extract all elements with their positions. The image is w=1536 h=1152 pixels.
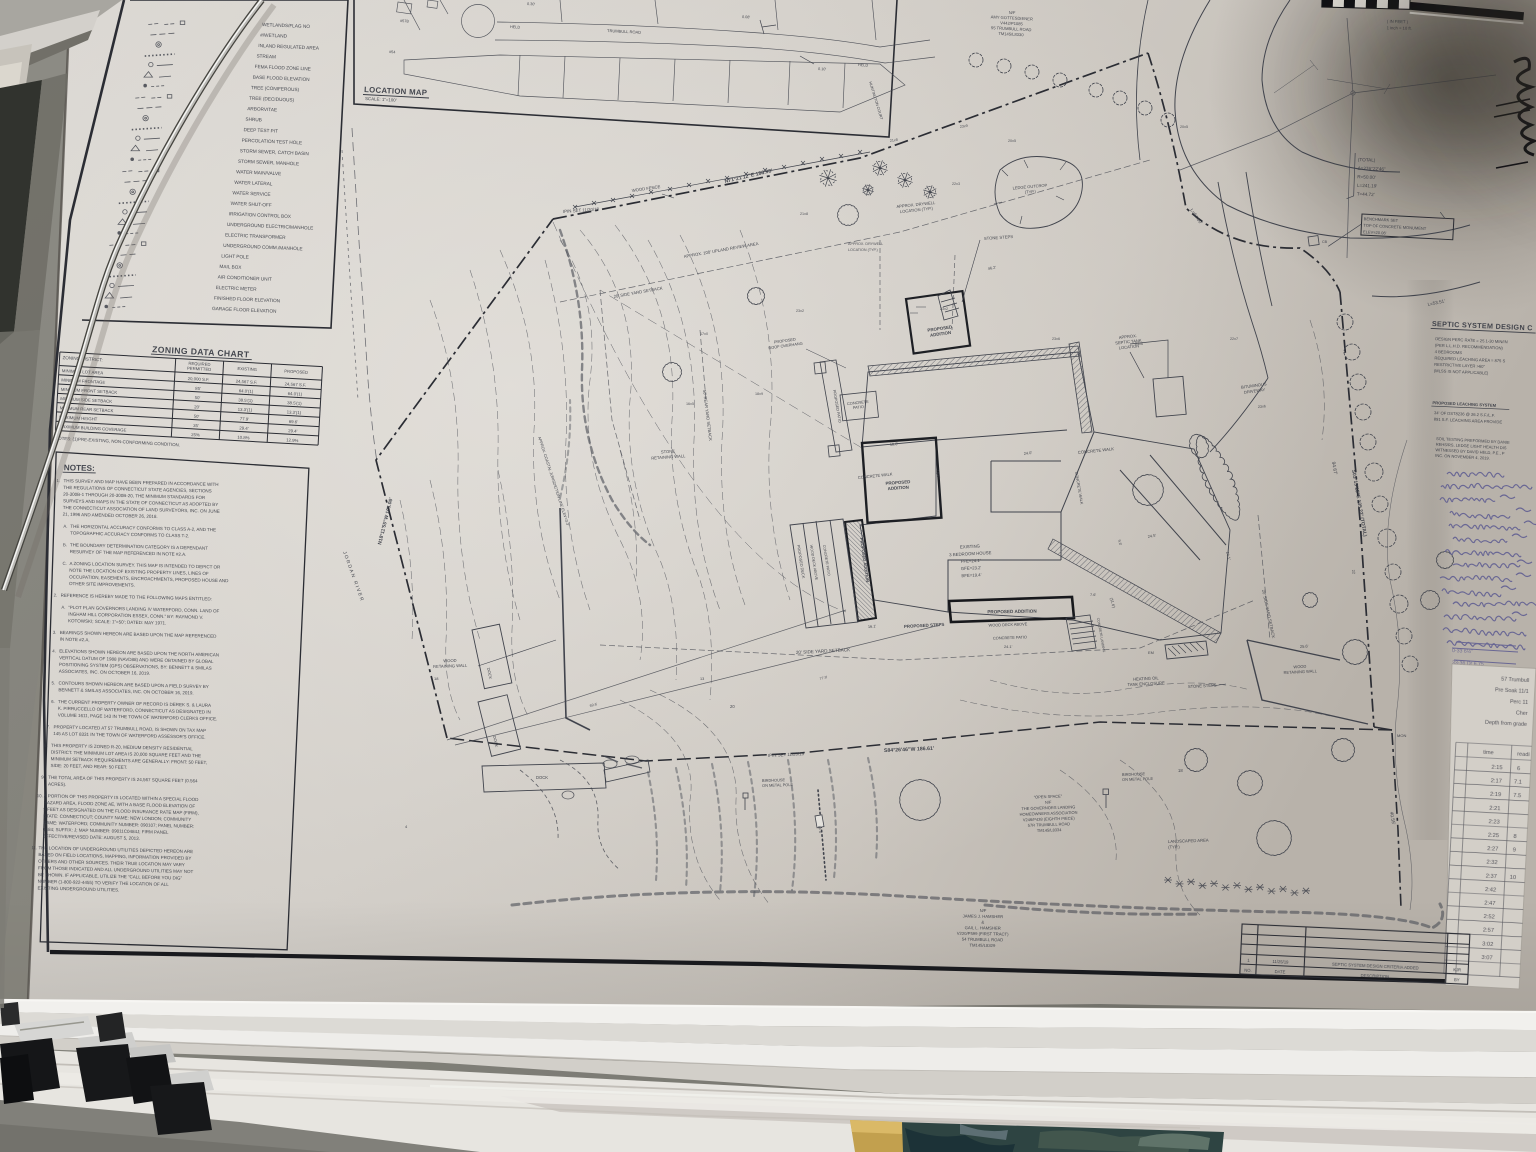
svg-text:3:02: 3:02: [1482, 941, 1494, 948]
svg-text:22x3: 22x3: [952, 182, 960, 186]
svg-text:2:32: 2:32: [1486, 860, 1498, 867]
svg-text:SHRUB: SHRUB: [245, 117, 262, 123]
svg-text:69.6': 69.6': [289, 419, 299, 425]
svg-text:29.4': 29.4': [288, 428, 298, 434]
svg-text:11.: 11.: [31, 845, 37, 850]
svg-text:8.: 8.: [44, 743, 48, 748]
svg-text:MAIL BOX: MAIL BOX: [219, 264, 242, 270]
svg-text:18x9: 18x9: [755, 392, 763, 396]
svg-text:B.: B.: [63, 542, 67, 547]
svg-text:7.: 7.: [46, 724, 50, 729]
svg-text:10: 10: [1510, 875, 1517, 881]
svg-text:20x5: 20x5: [1180, 125, 1188, 129]
svg-text:13.3'(1): 13.3'(1): [238, 407, 253, 413]
svg-text:2:52: 2:52: [1483, 914, 1495, 921]
svg-text:NO.: NO.: [1244, 968, 1252, 973]
svg-text:25.6': 25.6': [1300, 643, 1309, 649]
svg-text:85': 85': [195, 386, 201, 391]
svg-text:10.0': 10.0': [890, 441, 899, 447]
svg-text:2:37: 2:37: [1485, 873, 1497, 880]
svg-text:64.0'(1): 64.0'(1): [288, 391, 303, 397]
svg-text:12.9%: 12.9%: [286, 437, 299, 443]
svg-text:time: time: [1483, 750, 1494, 757]
svg-text:HELD: HELD: [510, 25, 521, 30]
svg-text:2:21: 2:21: [1489, 805, 1501, 812]
svg-text:9.: 9.: [41, 775, 45, 780]
svg-text:23x2: 23x2: [796, 309, 804, 313]
svg-text:PROPOSEDADDITION: PROPOSEDADDITION: [885, 479, 911, 491]
svg-text:64.0'(1): 64.0'(1): [239, 388, 254, 394]
svg-text:0-33 6½”: 0-33 6½”: [1452, 647, 1473, 655]
svg-text:22x7: 22x7: [1230, 337, 1238, 341]
svg-text:DATE: DATE: [1274, 969, 1285, 974]
svg-text:7.1: 7.1: [1514, 780, 1522, 786]
svg-text:2:42: 2:42: [1485, 887, 1497, 894]
svg-text:STREAM: STREAM: [256, 54, 276, 60]
svg-text:23x6: 23x6: [1258, 404, 1266, 409]
svg-text:MON: MON: [1397, 733, 1406, 738]
svg-text:3:07: 3:07: [1481, 955, 1493, 962]
svg-text:50': 50': [194, 414, 200, 419]
svg-text:50': 50': [195, 395, 201, 400]
svg-text:29.4': 29.4': [239, 425, 249, 431]
svg-text:38.5'(1): 38.5'(1): [287, 400, 302, 406]
svg-text:21x8: 21x8: [800, 212, 808, 216]
svg-text:C.: C.: [62, 561, 66, 566]
svg-text:2:17: 2:17: [1490, 778, 1502, 785]
svg-text:2:47: 2:47: [1484, 901, 1496, 908]
svg-text:0.08': 0.08': [742, 15, 751, 19]
svg-text:BY: BY: [1454, 977, 1460, 982]
svg-text:35': 35': [193, 423, 199, 428]
svg-text:24.1': 24.1': [1004, 644, 1013, 649]
svg-text:22: 22: [1351, 569, 1356, 574]
svg-text:17x0: 17x0: [700, 332, 708, 336]
svg-text:20x5: 20x5: [1008, 139, 1016, 143]
svg-text:7.5: 7.5: [1513, 793, 1521, 799]
svg-text:6: 6: [1517, 766, 1521, 772]
svg-text:2:27: 2:27: [1487, 846, 1499, 853]
svg-text:10.8%: 10.8%: [237, 435, 250, 441]
svg-text:16.1': 16.1': [868, 623, 877, 629]
svg-text:23x2: 23x2: [940, 307, 948, 311]
svg-text:2:15: 2:15: [1491, 765, 1503, 772]
svg-text:THE CURRENT PROPERTY OWNER OF: THE CURRENT PROPERTY OWNER OF RECORD IS …: [58, 699, 218, 721]
svg-text:6.: 6.: [51, 699, 55, 704]
svg-text:9: 9: [1513, 848, 1517, 854]
svg-text:3.: 3.: [53, 630, 57, 635]
svg-text:REQUIREDPERMITTED: REQUIREDPERMITTED: [187, 361, 212, 372]
svg-text:LOCATION (TYP.): LOCATION (TYP.): [848, 248, 878, 252]
svg-text:13.3'(1): 13.3'(1): [287, 409, 302, 415]
svg-text:10.: 10.: [37, 793, 43, 798]
svg-text:KJR: KJR: [1453, 967, 1461, 972]
svg-text:20': 20': [194, 404, 200, 409]
svg-text:EM: EM: [1148, 650, 1154, 655]
svg-text:23x6: 23x6: [1135, 342, 1143, 346]
svg-text:NOTES:: NOTES:: [64, 463, 95, 473]
svg-text:11/25/19: 11/25/19: [1272, 959, 1289, 965]
svg-text:23x6: 23x6: [1052, 337, 1060, 341]
svg-text:2:25: 2:25: [1488, 833, 1500, 840]
svg-text:16x5: 16x5: [686, 402, 694, 406]
svg-text:4.: 4.: [52, 648, 56, 653]
svg-text:PROPOSED ADDITION: PROPOSED ADDITION: [987, 609, 1037, 615]
svg-text:2:19: 2:19: [1490, 792, 1502, 799]
svg-text:2.: 2.: [54, 593, 58, 598]
svg-text:CB: CB: [1322, 240, 1328, 244]
svg-text:#57B: #57B: [400, 19, 410, 23]
svg-text:18: 18: [1178, 768, 1183, 773]
svg-text:0.10': 0.10': [818, 67, 827, 71]
svg-text:HELD: HELD: [858, 63, 869, 68]
svg-text:A.: A.: [61, 605, 65, 610]
svg-text:readi: readi: [1517, 752, 1530, 759]
svg-text:38.5'(1): 38.5'(1): [238, 397, 253, 403]
svg-text:18: 18: [434, 676, 439, 681]
svg-text:7.6': 7.6': [1090, 592, 1096, 597]
svg-text:A.: A.: [63, 524, 67, 529]
svg-text:0.30': 0.30': [527, 2, 536, 6]
svg-text:77.9': 77.9': [240, 416, 250, 422]
svg-text:5.: 5.: [51, 680, 55, 685]
svg-text:#54: #54: [389, 50, 396, 54]
svg-text:DOCK: DOCK: [536, 775, 548, 780]
svg-text:8: 8: [1513, 834, 1517, 840]
svg-text:25%: 25%: [191, 432, 200, 437]
svg-text:13: 13: [700, 677, 704, 681]
svg-text:APPROX. DRYWELL: APPROX. DRYWELL: [848, 242, 883, 246]
svg-text:2:57: 2:57: [1483, 928, 1495, 935]
svg-text:20: 20: [730, 704, 735, 709]
svg-text:2:23: 2:23: [1488, 819, 1500, 826]
